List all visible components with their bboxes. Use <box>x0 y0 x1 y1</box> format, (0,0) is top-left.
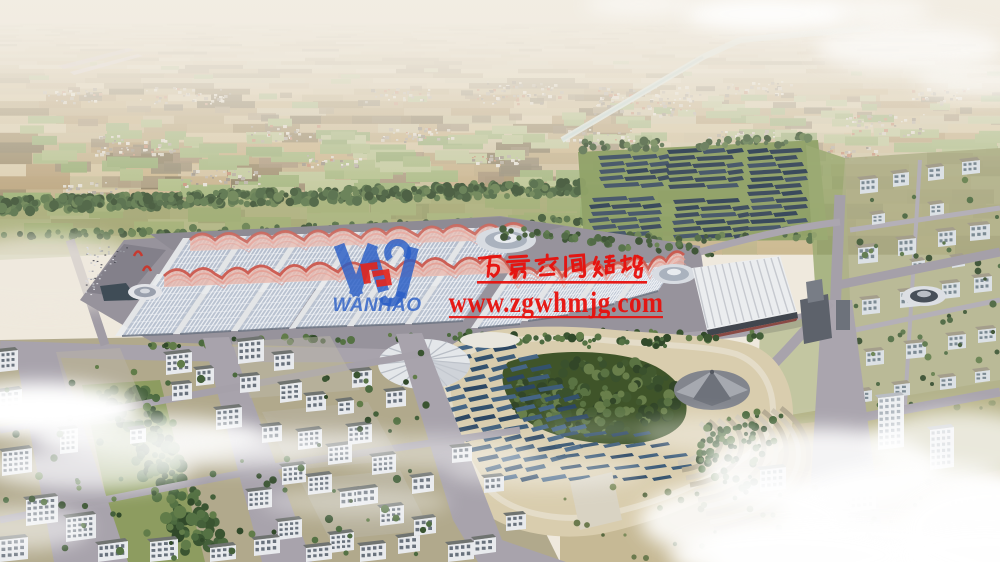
svg-text:WANHAO: WANHAO <box>333 295 422 316</box>
svg-text:www.zgwhmjg.com: www.zgwhmjg.com <box>449 285 664 319</box>
